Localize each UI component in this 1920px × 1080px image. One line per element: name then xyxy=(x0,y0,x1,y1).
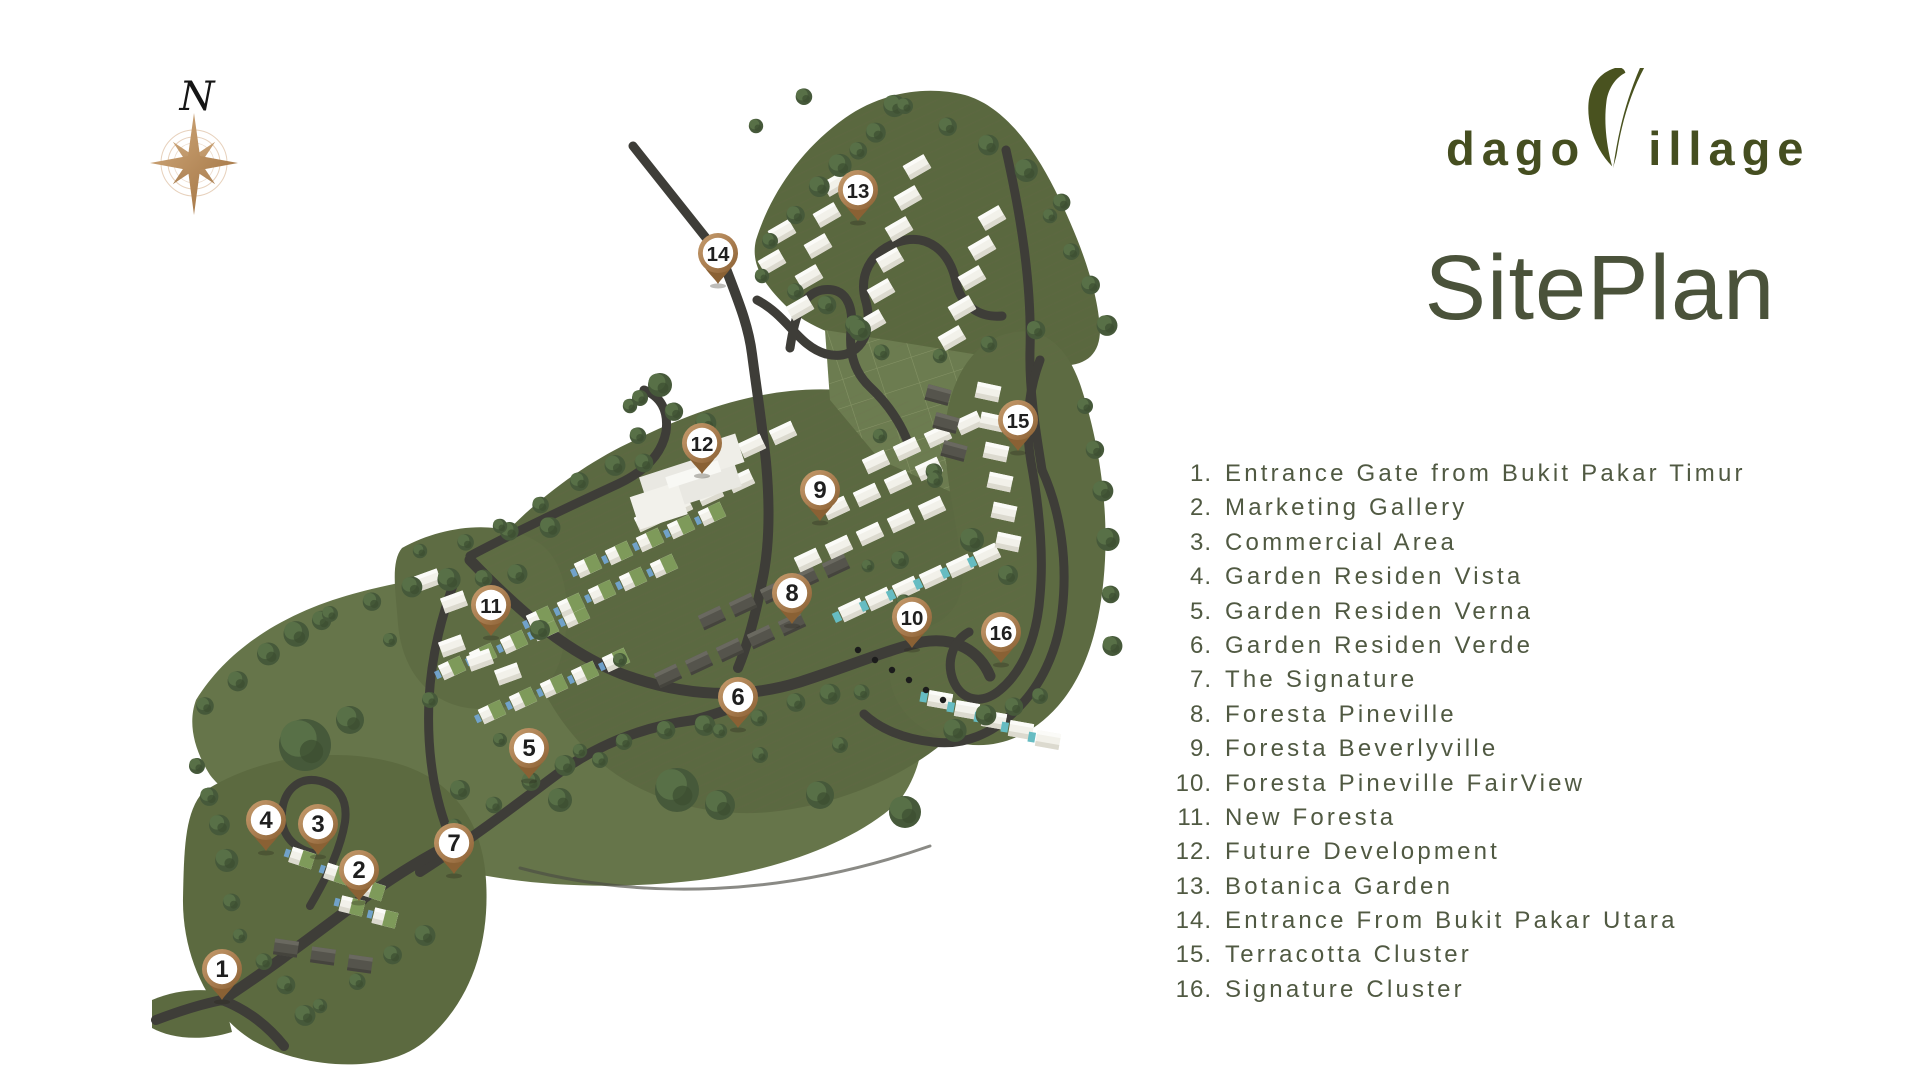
map-pin-number: 6 xyxy=(731,684,744,711)
legend-item-label: Signature Cluster xyxy=(1225,973,1465,1007)
legend-item-3: 3.Commercial Area xyxy=(1160,526,1746,560)
legend-item-label: Commercial Area xyxy=(1225,526,1457,560)
legend-item-number: 6. xyxy=(1160,629,1212,663)
legend-item-5: 5.Garden Residen Verna xyxy=(1160,595,1746,629)
legend-item-13: 13.Botanica Garden xyxy=(1160,870,1746,904)
legend-item-2: 2.Marketing Gallery xyxy=(1160,491,1746,525)
legend-item-4: 4.Garden Residen Vista xyxy=(1160,560,1746,594)
map-pin-number: 12 xyxy=(691,433,714,456)
legend-item-label: Garden Residen Vista xyxy=(1225,560,1523,594)
map-pin-number: 5 xyxy=(522,735,535,762)
siteplan-title: SitePlan xyxy=(1398,236,1802,341)
legend-item-label: New Foresta xyxy=(1225,801,1396,835)
map-pin-number: 14 xyxy=(707,243,730,266)
legend-item-8: 8.Foresta Pineville xyxy=(1160,698,1746,732)
map-pin-number: 3 xyxy=(311,811,324,838)
brand-logo: dago illage xyxy=(1446,66,1810,170)
legend-item-number: 11. xyxy=(1160,801,1212,835)
legend-item-12: 12.Future Development xyxy=(1160,835,1746,869)
siteplan-poster: N 12345678910111213141516 dago illage Si… xyxy=(0,0,1920,1080)
legend-item-label: Marketing Gallery xyxy=(1225,491,1467,525)
map-pin-number: 2 xyxy=(352,857,365,884)
leaf-v-icon xyxy=(1578,68,1652,172)
map-pin-number: 10 xyxy=(901,607,924,630)
legend-item-10: 10.Foresta Pineville FairView xyxy=(1160,767,1746,801)
legend-item-number: 14. xyxy=(1160,904,1212,938)
map-pin-number: 7 xyxy=(447,830,460,857)
legend-item-number: 4. xyxy=(1160,560,1212,594)
map-pin-number: 11 xyxy=(480,595,502,618)
legend-item-11: 11.New Foresta xyxy=(1160,801,1746,835)
legend-item-14: 14.Entrance From Bukit Pakar Utara xyxy=(1160,904,1746,938)
map-pin-number: 4 xyxy=(259,807,273,834)
legend-item-number: 5. xyxy=(1160,595,1212,629)
legend-item-number: 8. xyxy=(1160,698,1212,732)
legend-item-number: 16. xyxy=(1160,973,1212,1007)
legend-item-number: 15. xyxy=(1160,938,1212,972)
legend-item-label: Botanica Garden xyxy=(1225,870,1453,904)
legend-item-number: 1. xyxy=(1160,457,1212,491)
legend-item-label: Future Development xyxy=(1225,835,1500,869)
legend-item-label: Entrance Gate from Bukit Pakar Timur xyxy=(1225,457,1746,491)
legend-list: 1.Entrance Gate from Bukit Pakar Timur2.… xyxy=(1160,457,1746,1007)
compass-star-main xyxy=(150,113,238,215)
legend-item-6: 6.Garden Residen Verde xyxy=(1160,629,1746,663)
terrain-texture-2 xyxy=(755,91,1100,366)
legend-item-15: 15.Terracotta Cluster xyxy=(1160,938,1746,972)
legend-item-label: Foresta Pineville xyxy=(1225,698,1457,732)
map-pin-number: 8 xyxy=(785,580,798,607)
legend-item-label: Garden Residen Verna xyxy=(1225,595,1533,629)
map-pin-number: 16 xyxy=(990,622,1013,645)
legend-item-number: 7. xyxy=(1160,663,1212,697)
legend-item-label: Foresta Pineville FairView xyxy=(1225,767,1585,801)
legend-item-number: 12. xyxy=(1160,835,1212,869)
logo-text-dago: dago xyxy=(1446,127,1586,170)
legend-item-label: Entrance From Bukit Pakar Utara xyxy=(1225,904,1678,938)
legend-item-number: 3. xyxy=(1160,526,1212,560)
legend-item-number: 9. xyxy=(1160,732,1212,766)
legend-item-16: 16.Signature Cluster xyxy=(1160,973,1746,1007)
legend-item-label: Terracotta Cluster xyxy=(1225,938,1472,972)
legend: 1.Entrance Gate from Bukit Pakar Timur2.… xyxy=(1160,457,1746,1007)
map-pin-number: 15 xyxy=(1007,410,1030,433)
legend-item-9: 9.Foresta Beverlyville xyxy=(1160,732,1746,766)
legend-item-label: The Signature xyxy=(1225,663,1417,697)
logo-text-illage: illage xyxy=(1648,127,1810,170)
compass-north-label: N xyxy=(179,74,217,120)
legend-item-1: 1.Entrance Gate from Bukit Pakar Timur xyxy=(1160,457,1746,491)
legend-item-number: 10. xyxy=(1160,767,1212,801)
legend-item-label: Foresta Beverlyville xyxy=(1225,732,1498,766)
map-pin-number: 13 xyxy=(847,180,870,203)
legend-item-label: Garden Residen Verde xyxy=(1225,629,1533,663)
legend-item-7: 7.The Signature xyxy=(1160,663,1746,697)
legend-item-number: 13. xyxy=(1160,870,1212,904)
map-pin-number: 1 xyxy=(215,956,228,983)
compass-rose: N xyxy=(150,74,238,215)
map-pin-number: 9 xyxy=(813,477,826,504)
legend-item-number: 2. xyxy=(1160,491,1212,525)
